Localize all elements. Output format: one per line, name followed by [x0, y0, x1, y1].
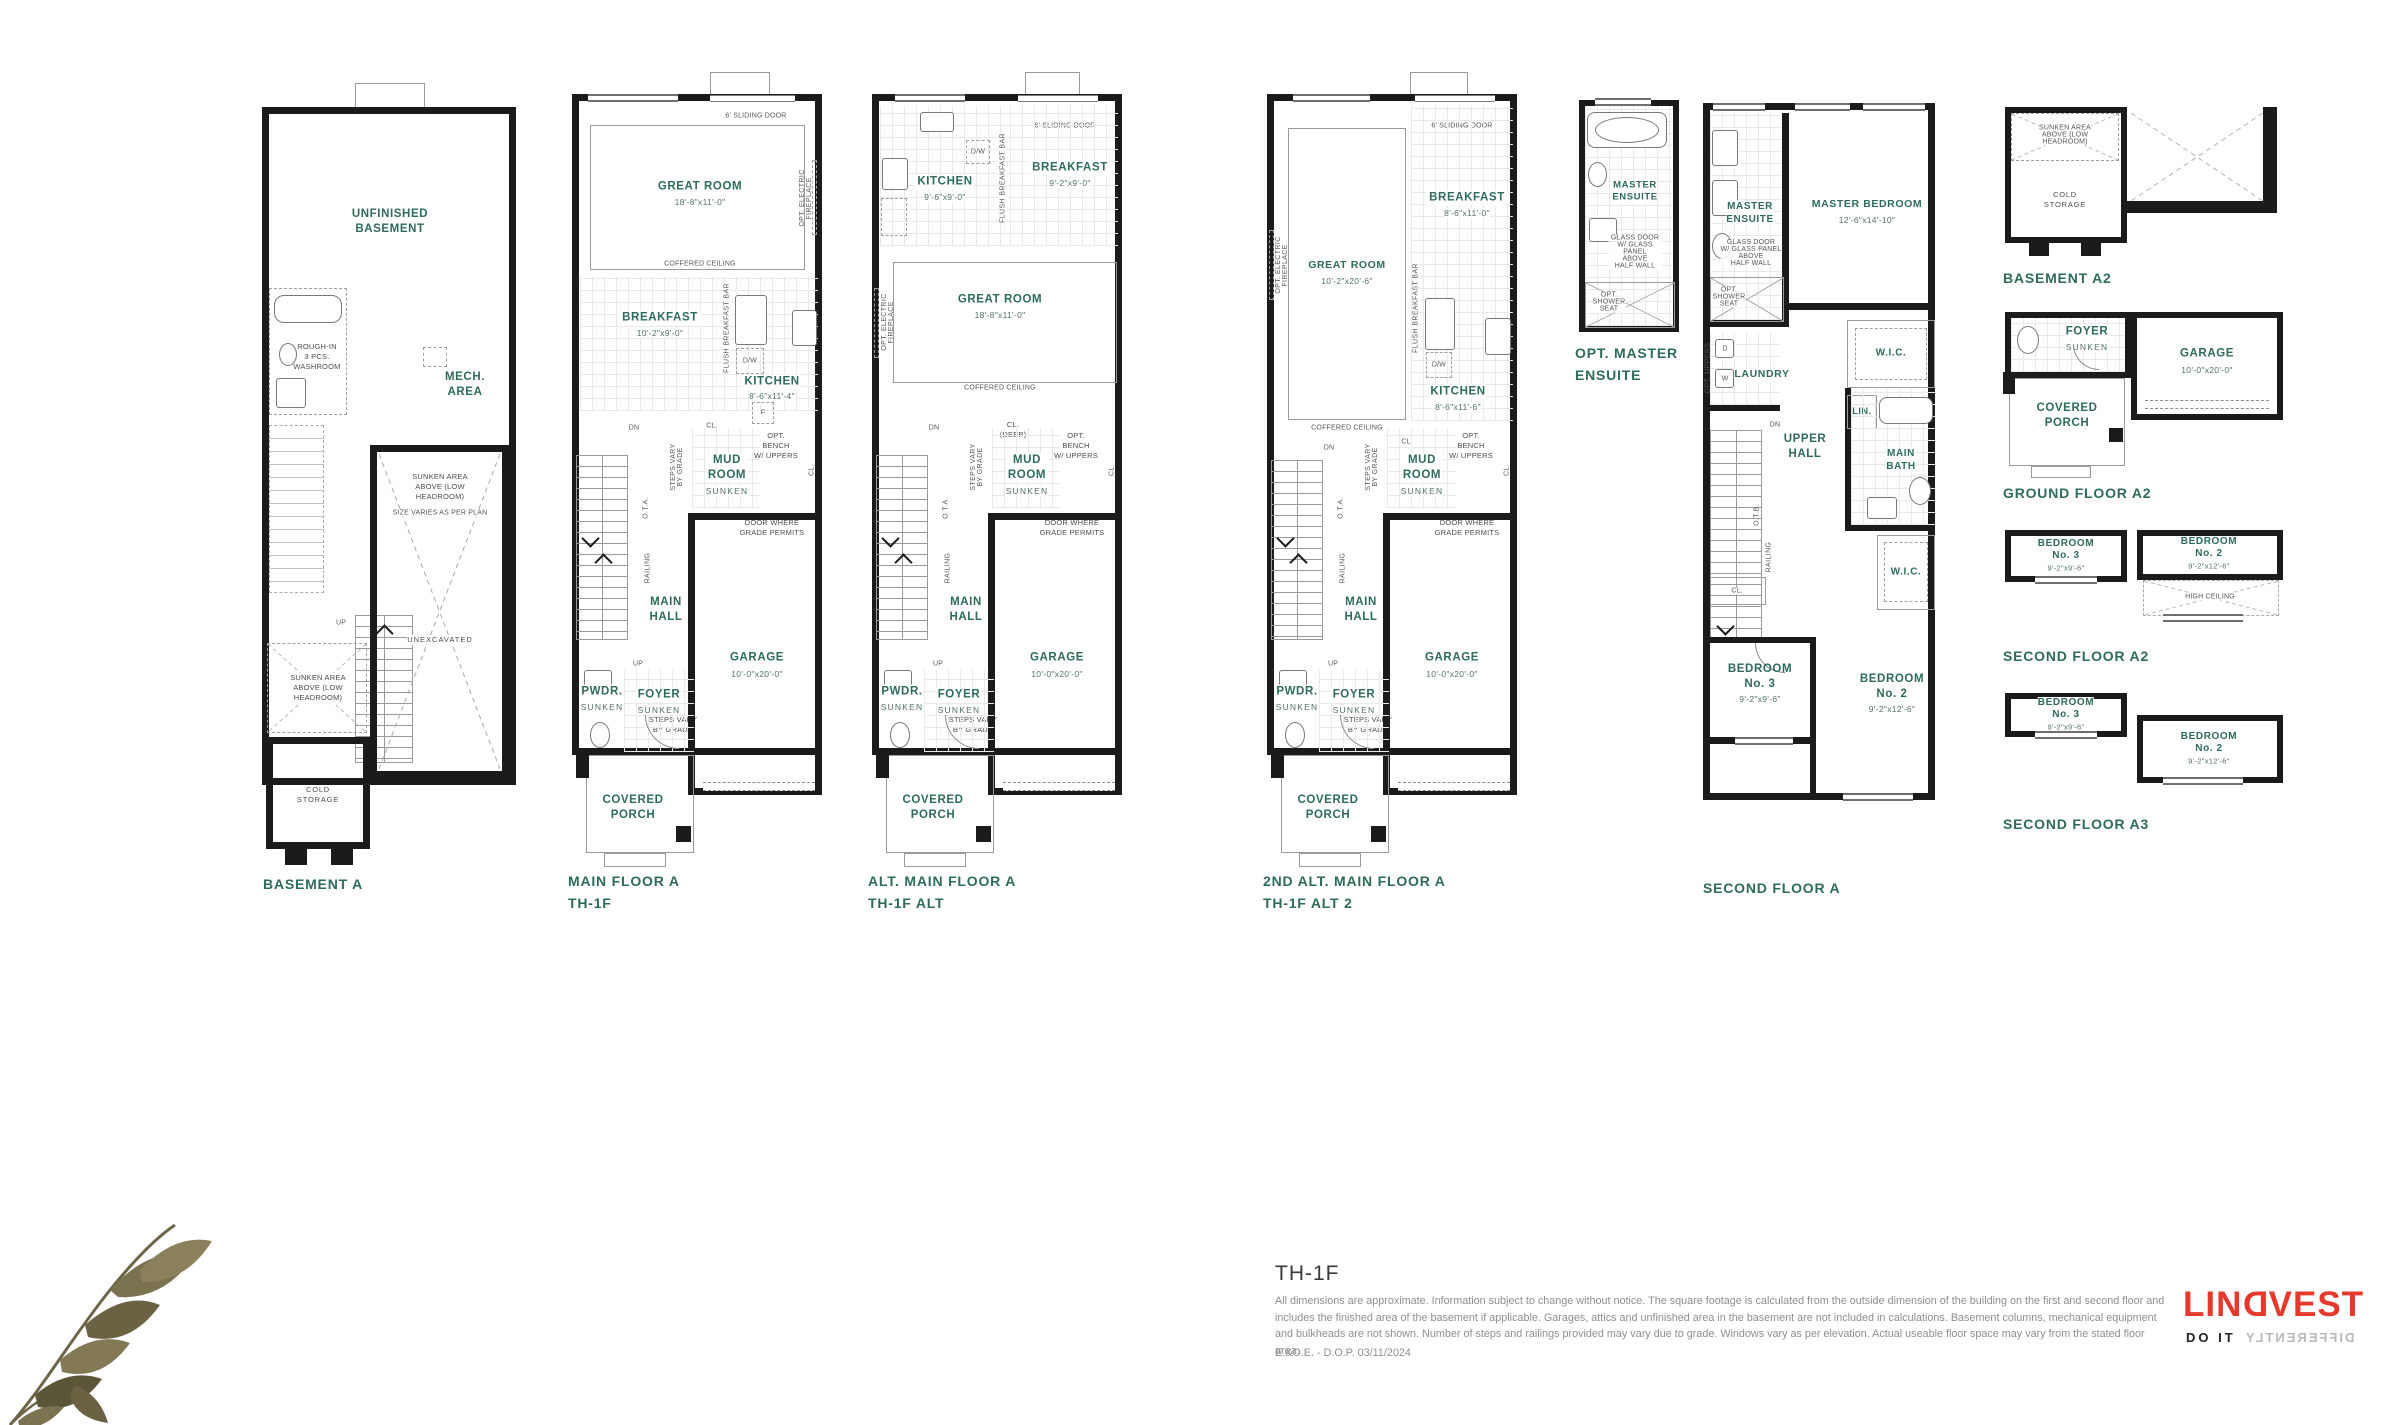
plan-caption: MAIN FLOOR A TH-1F [568, 870, 680, 915]
toilet [1909, 477, 1931, 505]
room-label-pwdr: PWDR. [1274, 685, 1319, 700]
floorplan-sheet: ROUGH-IN 3 PCS. WASHROOM UNFINISHED BASE… [0, 0, 2400, 1425]
flush-bar-label: FLUSH BREAKFAST BAR [724, 283, 731, 373]
stairs-dashed-upper [269, 425, 324, 593]
bedroom2-dim: 9'-2"x12'-6" [2188, 562, 2229, 571]
cold-storage-label: COLD STORAGE [2044, 190, 2086, 210]
great-room-border [1288, 128, 1406, 420]
wall-bath-bottom [1845, 525, 1935, 531]
brand-suffix: VEST [2269, 1285, 2364, 1324]
great-room-border [893, 262, 1117, 383]
garage-door [1003, 782, 1115, 791]
coffered-ceiling-label: COFFERED CEILING [964, 385, 1036, 392]
garage-door [2145, 400, 2269, 409]
room-label-bedroom2: BEDROOM No. 2 [2181, 731, 2237, 755]
fridge-label: F [761, 410, 765, 417]
porch-post [2029, 243, 2049, 256]
breakfast-dim: 10'-2"x9'-0" [637, 328, 683, 338]
window [588, 94, 678, 102]
sliding-door [710, 95, 795, 102]
ota-label: O.T.A. [643, 497, 650, 519]
room-label-wic2: W.I.C. [1891, 566, 1922, 579]
pwdr-sub: SUNKEN [1276, 702, 1319, 712]
porch-step [1299, 853, 1361, 867]
sunken-top-note: SUNKEN AREA ABOVE (LOW HEADROOM) [412, 472, 468, 502]
room-label-great-room: GREAT ROOM [1308, 259, 1386, 273]
up-label: UP [336, 620, 346, 627]
porch-post [1271, 748, 1284, 778]
window [2163, 614, 2243, 622]
window [1293, 94, 1370, 102]
railing-label: RAILING [945, 553, 952, 584]
wall-bedroom-bottom [1789, 303, 1935, 310]
shower-seat-note: OPT. SHOWER SEAT [1593, 292, 1626, 313]
porch-post [2003, 372, 2015, 394]
garage-dim: 10'-0"x20'-0" [1426, 669, 1477, 679]
room-label-mech-area: MECH. AREA [445, 370, 485, 400]
room-label-bedroom3: BEDROOM No. 3 [1728, 662, 1792, 692]
cold-storage-label: COLD STORAGE [297, 785, 339, 805]
vanity-sink [1712, 130, 1738, 166]
toilet [2017, 326, 2039, 354]
room-label-main-bath: MAIN BATH [1886, 447, 1915, 473]
glass-door-note: GLASS DOOR W/ GLASS PANEL ABOVE HALF WAL… [1609, 235, 1662, 270]
pwdr-sub: SUNKEN [581, 702, 624, 712]
sunken-left-note: SUNKEN AREA ABOVE (LOW HEADROOM) [290, 673, 346, 703]
fireplace-label: OPT. ELECTRIC FIREPLACE [799, 169, 813, 226]
flush-bar-label: FLUSH BREAKFAST BAR [1000, 133, 1007, 223]
fireplace-label: OPT. ELECTRIC FIREPLACE [1275, 236, 1289, 293]
railing-label: RAILING [1766, 542, 1773, 573]
plan-caption: OPT. MASTER ENSUITE [1575, 342, 1678, 387]
room-label-main-hall: MAIN HALL [949, 595, 982, 625]
sliding-door [1415, 95, 1495, 102]
window [2035, 576, 2097, 584]
washer-label: W [1722, 376, 1729, 383]
breakfast-dim: 9'-2"x9'-0" [1049, 178, 1090, 188]
window [1713, 103, 1765, 111]
floor-plan-opt-master-ensuite: MASTER ENSUITE GLASS DOOR W/ GLASS PANEL… [1573, 90, 1688, 390]
room-label-breakfast: BREAKFAST [1029, 161, 1111, 176]
master-bedroom-dim: 12'-6"x14'-10" [1839, 215, 1895, 225]
size-varies-note: SIZE VARIES AS PER PLAN [393, 510, 488, 517]
floor-plan-alt-main-a: 6' SLIDING DOOR D/W KITCHEN 9'-6"x9'-0" … [860, 70, 1140, 930]
coffered-ceiling-label: COFFERED CEILING [664, 261, 736, 268]
window [1843, 793, 1913, 801]
fridge [881, 198, 907, 236]
room-label-breakfast: BREAKFAST [1426, 191, 1508, 206]
plan-caption: SECOND FLOOR A3 [2003, 813, 2149, 835]
dn-label: DN [629, 425, 640, 432]
room-label-master-bedroom: MASTER BEDROOM [1812, 198, 1922, 212]
floor-plan-basement-a2: SUNKEN AREA ABOVE (LOW HEADROOM) COLD ST… [1995, 95, 2295, 305]
shower-seat-note: OPT. SHOWER SEAT [1713, 287, 1746, 308]
plan-caption: GROUND FLOOR A2 [2003, 482, 2151, 504]
room-label-foyer: FOYER [2064, 325, 2111, 340]
room-label-kitchen: KITCHEN [1428, 385, 1487, 400]
floor-plan-alt2-main-a: 6' SLIDING DOOR GREAT ROOM 10'-2"x20'-6"… [1255, 70, 1535, 930]
porch-step [604, 853, 666, 867]
garage-door [1398, 782, 1510, 791]
garage-dim: 10'-0"x20'-0" [1031, 669, 1082, 679]
foyer-sub: SUNKEN [938, 705, 981, 715]
bathtub-basin [1595, 117, 1659, 143]
porch-post [2109, 428, 2123, 442]
closet2-label: CL. [809, 464, 816, 476]
eoe-line: E.&O.E. - D.O.P. 03/11/2024 [1275, 1347, 1411, 1359]
plan-caption: ALT. MAIN FLOOR A TH-1F ALT [868, 870, 1016, 915]
breakfast-dim: 8'-6"x11'-0" [1444, 208, 1490, 218]
sunken-note: SUNKEN AREA ABOVE (LOW HEADROOM) [2039, 125, 2091, 146]
stair-bump [355, 83, 425, 109]
steps-vary-vert: STEPS VARY BY GRADE [970, 443, 984, 490]
bedroom3-dim: 9'-2"x9'-6" [1739, 694, 1780, 704]
railing-label: RAILING [645, 553, 652, 584]
fireplace-opt [874, 288, 879, 358]
bench-note: OPT. BENCH W/ UPPERS [1054, 431, 1098, 461]
room-label-porch: COVERED PORCH [1297, 793, 1358, 823]
dn-label: DN [1770, 422, 1781, 429]
window [895, 94, 965, 102]
steps-vary-vert: STEPS VARY BY GRADE [670, 443, 684, 490]
room-label-wic: W.I.C. [1876, 347, 1907, 360]
room-label-bedroom2: BEDROOM No. 2 [1860, 672, 1924, 702]
room-label-bedroom3: BEDROOM No. 3 [2038, 697, 2094, 721]
mud-room-sub: SUNKEN [1006, 486, 1049, 496]
ota-label: O.T.A. [1338, 497, 1345, 519]
room-label-bedroom2: BEDROOM No. 2 [2181, 536, 2237, 560]
bedroom3-dim: 9'-2"x9'-6" [2048, 564, 2085, 573]
window [1735, 737, 1793, 745]
window [1795, 103, 1850, 111]
steps-vary-vert: STEPS VARY BY GRADE [1365, 443, 1379, 490]
stove [882, 158, 908, 190]
window [1595, 98, 1651, 106]
room-label-great-room: GREAT ROOM [658, 180, 742, 195]
great-room-dim: 18'-8"x11'-0" [675, 197, 726, 207]
garage-dim: 10'-0"x20'-0" [731, 669, 782, 679]
fireplace-opt [1269, 230, 1274, 300]
room-label-breakfast: BREAKFAST [619, 311, 701, 326]
sliding-door [1018, 95, 1098, 102]
room-label-foyer: FOYER [636, 688, 683, 703]
porch-post [331, 849, 353, 865]
bathtub [1879, 397, 1933, 424]
coffered-ceiling-label: COFFERED CEILING [1311, 425, 1383, 432]
logo-tagline: DO ITDIFFERENTLY [2186, 1330, 2354, 1345]
room-label-garage: GARAGE [1030, 651, 1084, 666]
room-label-kitchen: KITCHEN [915, 175, 974, 190]
bath-sink [1867, 497, 1897, 519]
room-label-laundry: LAUNDRY [1734, 368, 1789, 382]
up-label: UP [1328, 661, 1338, 668]
room-label-garage: GARAGE [2180, 347, 2234, 362]
kitchen-dim: 8'-6"x11'-4" [749, 391, 795, 401]
room-label-unfinished-basement: UNFINISHED BASEMENT [352, 207, 428, 237]
tile-floor-breakfast [1010, 106, 1118, 246]
porch-post [976, 826, 991, 842]
pwdr-toilet [1285, 722, 1305, 748]
floor-plan-second-a2: BEDROOM No. 3 9'-2"x9'-6" BEDROOM No. 2 … [1995, 520, 2295, 680]
stair-rail [602, 455, 603, 640]
room-label-main-hall: MAIN HALL [649, 595, 682, 625]
brand-prefix: LIN [2183, 1285, 2242, 1324]
wall-bed-divider [1810, 637, 1816, 797]
room-label-master-ensuite: MASTER ENSUITE [1612, 180, 1657, 205]
room-label-pwdr: PWDR. [579, 685, 624, 700]
unexcavated-label: UNEXCAVATED [407, 635, 473, 645]
floor-plan-basement-a: ROUGH-IN 3 PCS. WASHROOM UNFINISHED BASE… [255, 95, 535, 925]
kitchen-island [1425, 298, 1455, 350]
otb-label: O.T.B. [1754, 504, 1761, 526]
railing-label: RAILING [1340, 553, 1347, 584]
stove [1485, 318, 1511, 355]
great-room-dim: 18'-8"x11'-0" [975, 310, 1026, 320]
plan-caption: 2ND ALT. MAIN FLOOR A TH-1F ALT 2 [1263, 870, 1446, 915]
room-label-mud-room: MUD ROOM [1006, 453, 1048, 483]
room-label-mud-room: MUD ROOM [706, 453, 748, 483]
plan-caption: SECOND FLOOR A2 [2003, 645, 2149, 667]
dn-label: DN [929, 425, 940, 432]
porch-post [576, 748, 589, 778]
closet2-label: CL. [1504, 464, 1511, 476]
lindvest-logo: LINDVEST [2183, 1285, 2364, 1325]
porch-step [904, 853, 966, 867]
bathtub [274, 295, 342, 323]
stair-rail [1297, 460, 1298, 640]
garage-door [703, 782, 815, 791]
dryer-label: D [1722, 346, 1727, 353]
room-label-upper-hall: UPPER HALL [1784, 432, 1827, 462]
pwdr-toilet [890, 722, 910, 748]
foyer-sub: SUNKEN [638, 705, 681, 715]
dw-label: D/W [1432, 362, 1446, 369]
sliding-door-label: 6' SLIDING DOOR [725, 113, 786, 120]
tagline-do-it: DO IT [2186, 1330, 2236, 1345]
room-label-master-ensuite: MASTER ENSUITE [1726, 200, 1774, 226]
porch-post [2081, 243, 2101, 256]
window [2035, 731, 2097, 739]
stair-rail [902, 455, 903, 640]
bedroom2-dim: 9'-2"x12'-6" [1869, 704, 1915, 714]
room-label-porch: COVERED PORCH [602, 793, 663, 823]
model-title: TH-1F [1275, 1262, 1340, 1286]
room-label-mud-room: MUD ROOM [1401, 453, 1443, 483]
dw-label: D/W [743, 358, 757, 365]
stove [792, 310, 817, 346]
glass-door-note: GLASS DOOR W/ GLASS PANEL ABOVE HALF WAL… [1720, 239, 1781, 267]
tagline-differently-mirrored: DIFFERENTLY [2244, 1330, 2354, 1345]
porch-post [285, 849, 307, 865]
window [1863, 103, 1925, 111]
mud-room-sub: SUNKEN [1401, 486, 1444, 496]
bench-note: OPT. BENCH W/ UPPERS [1449, 431, 1493, 461]
washroom-note: ROUGH-IN 3 PCS. WASHROOM [293, 342, 340, 372]
room-label-main-hall: MAIN HALL [1344, 595, 1377, 625]
room-label-porch: COVERED PORCH [902, 793, 963, 823]
room-label-garage: GARAGE [1425, 651, 1479, 666]
plan-caption: BASEMENT A2 [2003, 267, 2112, 289]
room-label-foyer: FOYER [936, 688, 983, 703]
floor-plan-ground-a2: FOYER SUNKEN COVERED PORCH GARAGE 10'-0"… [1995, 300, 2295, 510]
room-label-kitchen: KITCHEN [742, 375, 801, 390]
bench-note: OPT. BENCH W/ UPPERS [754, 431, 798, 461]
wall-right [2263, 107, 2277, 213]
stair-rail [1736, 430, 1737, 642]
kitchen-dim: 9'-6"x9'-0" [924, 192, 965, 202]
pwdr-sub: SUNKEN [881, 702, 924, 712]
wall-bottom [2127, 201, 2277, 213]
bedroom2-dim: 9'-2"x12'-6" [2188, 757, 2229, 766]
floor-plan-main-a: 6' SLIDING DOOR GREAT ROOM 18'-8"x11'-0"… [560, 70, 840, 930]
closet2-label: CL. [1109, 464, 1116, 476]
dw-label: D/W [971, 149, 985, 156]
porch-post [876, 748, 889, 778]
porch-post [676, 826, 691, 842]
opt-uppers-label: OPT. UPPERS [1705, 343, 1712, 394]
up-label: UP [933, 661, 943, 668]
garage-above-dashes [2131, 113, 2263, 201]
plan-caption: SECOND FLOOR A [1703, 877, 1840, 899]
room-label-porch: COVERED PORCH [2036, 401, 2097, 431]
kitchen-dim: 8'-6"x11'-6" [1435, 402, 1481, 412]
pwdr-toilet [590, 722, 610, 748]
kitchen-island [735, 295, 767, 345]
garage-dim: 10'-0"x20'-0" [2181, 365, 2232, 375]
toilet [1588, 162, 1607, 187]
flush-bar-label: FLUSH BREAKFAST BAR [1413, 263, 1420, 353]
mud-room-sub: SUNKEN [706, 486, 749, 496]
foyer-sub: SUNKEN [1333, 705, 1376, 715]
room-label-garage: GARAGE [730, 651, 784, 666]
closet-label: CL. [1731, 588, 1743, 595]
floor-plan-second-a3: BEDROOM No. 3 9'-2"x9'-6" BEDROOM No. 2 … [1995, 685, 2295, 845]
ota-label: O.T.A. [943, 497, 950, 519]
high-ceiling-label: HIGH CEILING [2185, 594, 2235, 601]
leaf-decoration [0, 1085, 230, 1425]
dn-label: DN [1324, 445, 1335, 452]
room-label-pwdr: PWDR. [879, 685, 924, 700]
mech-equipment [423, 347, 447, 367]
wall-laundry-bottom [1710, 405, 1780, 411]
porch-post [1371, 826, 1386, 842]
up-label: UP [633, 661, 643, 668]
shower-base [276, 378, 306, 408]
porch-step [2031, 466, 2091, 478]
plan-caption: BASEMENT A [263, 873, 363, 895]
fireplace-label: OPT. ELECTRIC FIREPLACE [881, 293, 895, 350]
room-label-great-room: GREAT ROOM [958, 293, 1042, 308]
room-label-bedroom3: BEDROOM No. 3 [2038, 538, 2094, 562]
room-label-foyer: FOYER [1331, 688, 1378, 703]
window [2163, 777, 2243, 785]
great-room-dim: 10'-2"x20'-6" [1321, 276, 1372, 286]
brand-d-mirrored: D [2242, 1285, 2268, 1325]
kitchen-sink [920, 112, 954, 132]
floor-plan-second-a: MASTER ENSUITE GLASS DOOR W/ GLASS PANEL… [1695, 85, 2000, 920]
